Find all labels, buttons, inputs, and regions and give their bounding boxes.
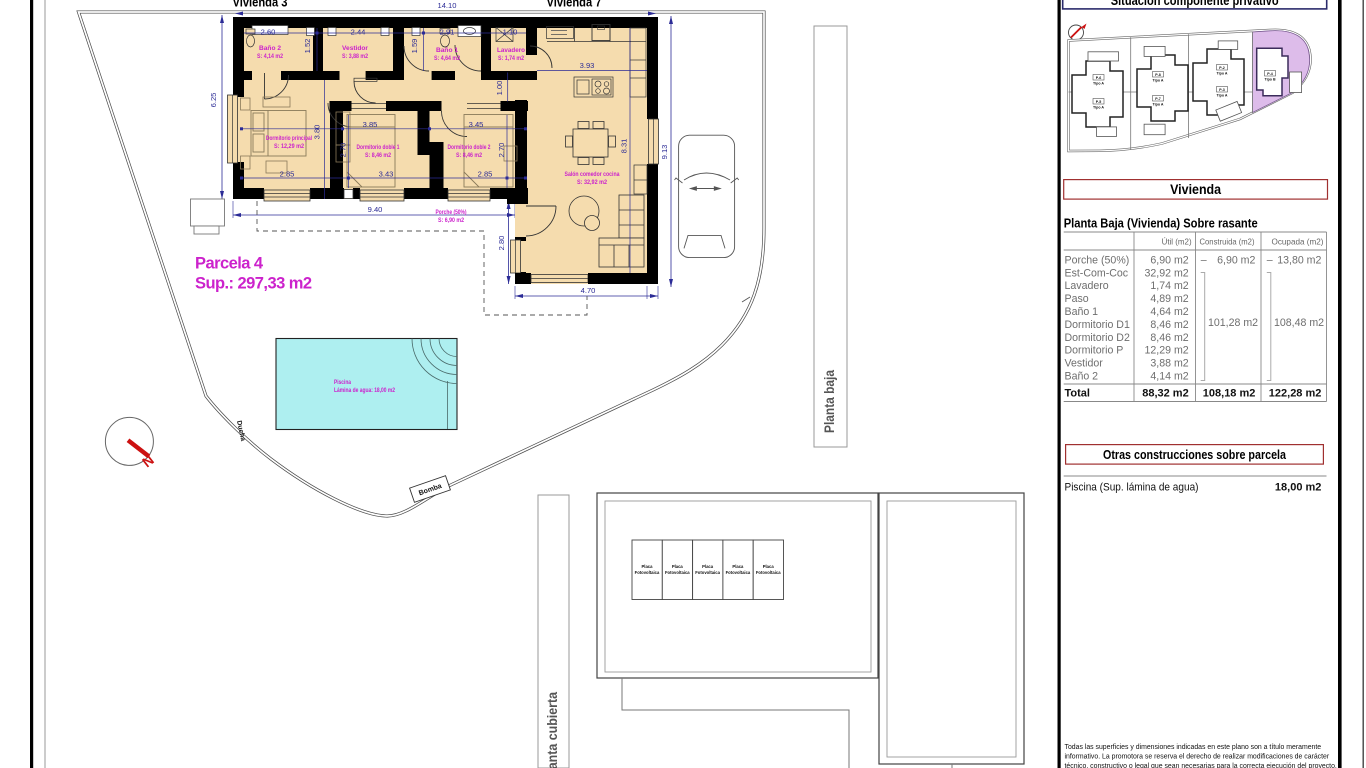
svg-text:informativo. La promotora se r: informativo. La promotora se reserva el …	[1065, 754, 1330, 761]
svg-text:Paso: Paso	[1065, 293, 1089, 305]
svg-text:4,89 m2: 4,89 m2	[1150, 293, 1188, 305]
svg-text:P-2: P-2	[1219, 66, 1225, 70]
svg-text:Parcela 4: Parcela 4	[195, 255, 264, 273]
svg-text:3.43: 3.43	[379, 170, 394, 179]
svg-text:Vivienda 7: Vivienda 7	[547, 0, 602, 10]
svg-text:S: 4,14 m2: S: 4,14 m2	[257, 53, 283, 60]
svg-text:12,29 m2: 12,29 m2	[1145, 345, 1189, 357]
svg-text:Salón comedor cocina: Salón comedor cocina	[565, 171, 620, 178]
svg-text:Tipo A: Tipo A	[1093, 82, 1104, 86]
svg-text:Porche (50%): Porche (50%)	[436, 209, 467, 216]
svg-text:3,88 m2: 3,88 m2	[1150, 358, 1188, 370]
svg-text:Vestidor: Vestidor	[342, 45, 368, 52]
svg-text:S: 4,64 m2: S: 4,64 m2	[434, 55, 460, 62]
svg-text:Dormitorio D1: Dormitorio D1	[1065, 319, 1130, 331]
svg-text:Situación componente privativo: Situación componente privativo	[1111, 0, 1279, 8]
svg-text:Porche (50%): Porche (50%)	[1065, 254, 1130, 266]
svg-text:2.44: 2.44	[351, 28, 366, 37]
svg-text:1.10: 1.10	[503, 28, 518, 37]
svg-text:122,28 m2: 122,28 m2	[1269, 388, 1322, 400]
svg-text:Vestidor: Vestidor	[1065, 358, 1104, 370]
svg-text:9.13: 9.13	[660, 145, 669, 160]
svg-text:Lavadero: Lavadero	[1065, 280, 1109, 292]
svg-text:Tipo A: Tipo A	[1217, 94, 1228, 98]
svg-text:Planta baja: Planta baja	[822, 370, 837, 433]
svg-text:Piscina (Sup. lámina de agua): Piscina (Sup. lámina de agua)	[1065, 482, 1199, 494]
svg-text:8.31: 8.31	[620, 139, 629, 154]
svg-text:Fotovoltaica: Fotovoltaica	[756, 570, 781, 575]
svg-text:S: 12,29 m2: S: 12,29 m2	[274, 143, 304, 150]
svg-text:Lavadero: Lavadero	[497, 47, 525, 54]
svg-text:8,46 m2: 8,46 m2	[1150, 319, 1188, 331]
svg-text:88,32 m2: 88,32 m2	[1142, 388, 1188, 400]
svg-text:1.52: 1.52	[303, 39, 312, 54]
svg-text:Tipo A: Tipo A	[1153, 103, 1164, 107]
svg-text:14.10: 14.10	[437, 1, 456, 10]
svg-text:Dormitorio P: Dormitorio P	[1065, 345, 1124, 357]
svg-text:Construida (m2): Construida (m2)	[1200, 237, 1255, 247]
svg-text:3.85: 3.85	[363, 120, 378, 129]
svg-text:Baño 2: Baño 2	[1065, 371, 1099, 383]
svg-text:108,18 m2: 108,18 m2	[1203, 388, 1256, 400]
svg-text:Útil (m2): Útil (m2)	[1162, 237, 1192, 247]
svg-text:13,80 m2: 13,80 m2	[1277, 254, 1321, 266]
svg-text:Otras construcciones sobre par: Otras construcciones sobre parcela	[1103, 447, 1287, 462]
svg-text:Dormitorio principal: Dormitorio principal	[266, 135, 312, 142]
svg-text:1.59: 1.59	[410, 39, 419, 54]
svg-text:Placa: Placa	[732, 564, 744, 569]
svg-text:P-4: P-4	[1267, 72, 1273, 76]
svg-text:Baño 1: Baño 1	[1065, 306, 1099, 318]
svg-text:101,28 m2: 101,28 m2	[1208, 317, 1258, 329]
svg-text:Est-Com-Coc: Est-Com-Coc	[1065, 267, 1129, 279]
svg-text:9.40: 9.40	[368, 205, 383, 214]
svg-text:Lámina de agua: 18,00 m2: Lámina de agua: 18,00 m2	[334, 387, 395, 394]
svg-text:6.25: 6.25	[209, 93, 218, 108]
svg-text:1,74 m2: 1,74 m2	[1150, 280, 1188, 292]
svg-text:Planta cubierta: Planta cubierta	[545, 692, 560, 768]
svg-text:Placa: Placa	[642, 564, 654, 569]
svg-text:Fotovoltaica: Fotovoltaica	[665, 570, 690, 575]
svg-text:S: 32,92 m2: S: 32,92 m2	[577, 179, 607, 186]
svg-text:Fotovoltaica: Fotovoltaica	[695, 570, 720, 575]
svg-text:Todas las superficies y dimens: Todas las superficies y dimensiones indi…	[1065, 744, 1322, 751]
svg-text:2.91: 2.91	[440, 28, 455, 37]
svg-text:S: 1,74 m2: S: 1,74 m2	[498, 55, 524, 62]
svg-text:108,48 m2: 108,48 m2	[1274, 317, 1324, 329]
svg-text:2.80: 2.80	[497, 236, 506, 251]
svg-text:Planta Baja (Vivienda) Sobre r: Planta Baja (Vivienda) Sobre rasante	[1064, 216, 1258, 231]
svg-text:Tipo A: Tipo A	[1153, 79, 1164, 83]
svg-text:1.00: 1.00	[495, 81, 504, 96]
svg-text:Vivienda: Vivienda	[1170, 182, 1221, 197]
svg-text:2.70: 2.70	[339, 143, 348, 158]
svg-text:18,00 m2: 18,00 m2	[1275, 482, 1321, 494]
svg-text:–: –	[1201, 254, 1207, 266]
svg-text:P-7: P-7	[1155, 97, 1161, 101]
svg-text:2.70: 2.70	[497, 143, 506, 158]
svg-text:Dormitorio doble 2: Dormitorio doble 2	[448, 144, 491, 151]
svg-text:Placa: Placa	[763, 564, 775, 569]
svg-text:3.45: 3.45	[469, 120, 484, 129]
svg-text:Sup.: 297,33 m2: Sup.: 297,33 m2	[195, 275, 312, 293]
svg-text:Tipo A: Tipo A	[1093, 106, 1104, 110]
svg-text:P-3: P-3	[1219, 88, 1225, 92]
svg-text:Fotovoltaica: Fotovoltaica	[635, 570, 660, 575]
svg-text:–: –	[1267, 254, 1273, 266]
svg-text:8,46 m2: 8,46 m2	[1150, 332, 1188, 344]
svg-text:Dormitorio doble 1: Dormitorio doble 1	[357, 144, 400, 151]
svg-text:técnico, constructivo o legal: técnico, constructivo o legal que sean n…	[1065, 763, 1337, 768]
svg-text:Tipo B: Tipo B	[1264, 78, 1276, 82]
svg-text:2.85: 2.85	[280, 170, 295, 179]
svg-text:P-6: P-6	[1096, 76, 1102, 80]
svg-text:Baño 2: Baño 2	[259, 45, 281, 52]
svg-text:P-5: P-5	[1096, 100, 1102, 104]
svg-text:6,90 m2: 6,90 m2	[1150, 254, 1188, 266]
svg-text:4.70: 4.70	[581, 286, 596, 295]
svg-text:Total: Total	[1065, 388, 1090, 400]
svg-text:P-8: P-8	[1155, 73, 1161, 77]
svg-text:S: 8,46 m2: S: 8,46 m2	[456, 152, 482, 159]
svg-text:2.85: 2.85	[478, 170, 493, 179]
svg-text:Placa: Placa	[672, 564, 684, 569]
svg-text:S: 3,88 m2: S: 3,88 m2	[342, 53, 368, 60]
svg-text:3.93: 3.93	[580, 61, 595, 70]
svg-text:S: 8,46 m2: S: 8,46 m2	[365, 152, 391, 159]
svg-text:32,92 m2: 32,92 m2	[1145, 267, 1189, 279]
svg-text:Vivienda 3: Vivienda 3	[233, 0, 288, 10]
svg-text:3.80: 3.80	[313, 125, 322, 140]
svg-text:Dormitorio D2: Dormitorio D2	[1065, 332, 1130, 344]
svg-text:2.60: 2.60	[261, 28, 276, 37]
svg-text:6,90 m2: 6,90 m2	[1217, 254, 1255, 266]
svg-text:Baño 1: Baño 1	[436, 47, 458, 54]
svg-text:4,14 m2: 4,14 m2	[1150, 371, 1188, 383]
svg-text:4,64 m2: 4,64 m2	[1150, 306, 1188, 318]
svg-text:Piscina: Piscina	[334, 379, 351, 386]
svg-text:Placa: Placa	[702, 564, 714, 569]
svg-text:Ocupada (m2): Ocupada (m2)	[1272, 237, 1324, 247]
svg-text:S: 6,90 m2: S: 6,90 m2	[438, 217, 464, 224]
svg-text:Tipo A: Tipo A	[1217, 72, 1228, 76]
svg-text:Fotovoltaica: Fotovoltaica	[726, 570, 751, 575]
